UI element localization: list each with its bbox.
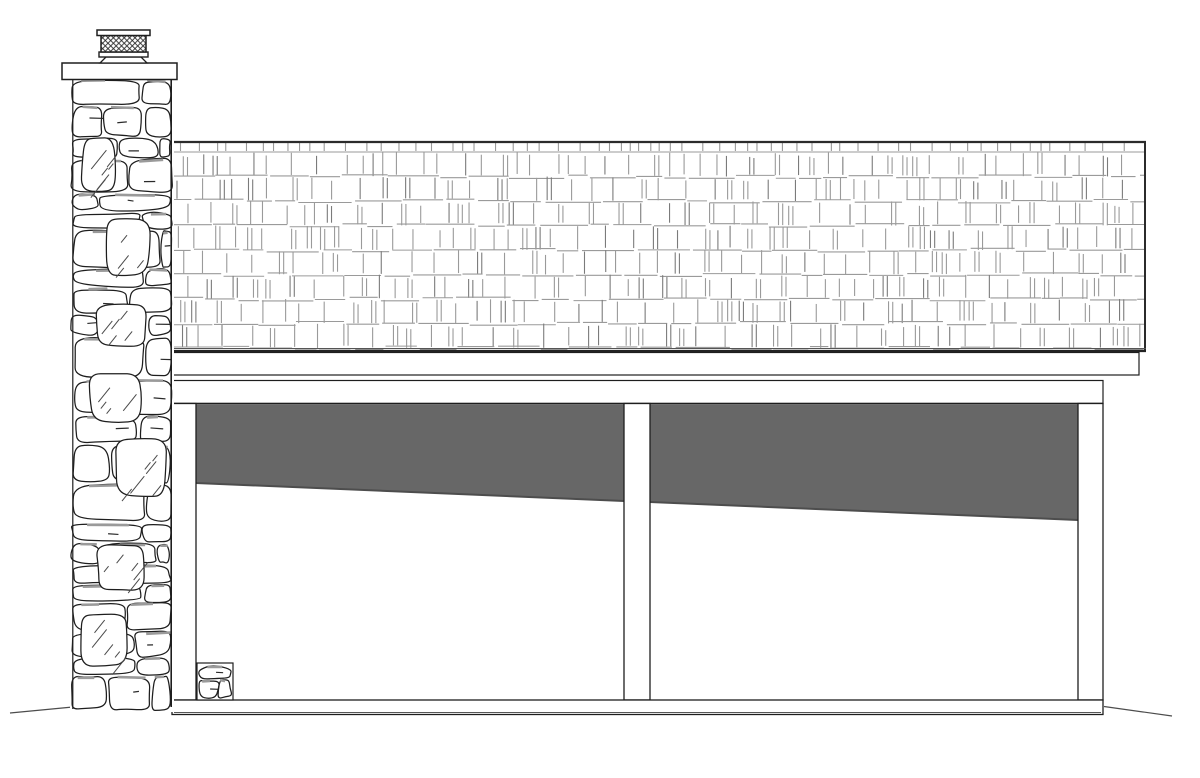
- roof-fascia-band: [171, 353, 1139, 376]
- elevation-svg: [0, 0, 1200, 778]
- elevation-drawing: [0, 0, 1200, 778]
- chimney-cap-and-spark-arrestor: [62, 30, 177, 80]
- header-beam: [171, 381, 1103, 404]
- roof-shake-field: [171, 141, 1146, 352]
- sill-base-band: [172, 700, 1103, 715]
- stone-chimney: [70, 78, 174, 712]
- stone-stoop: [197, 663, 233, 700]
